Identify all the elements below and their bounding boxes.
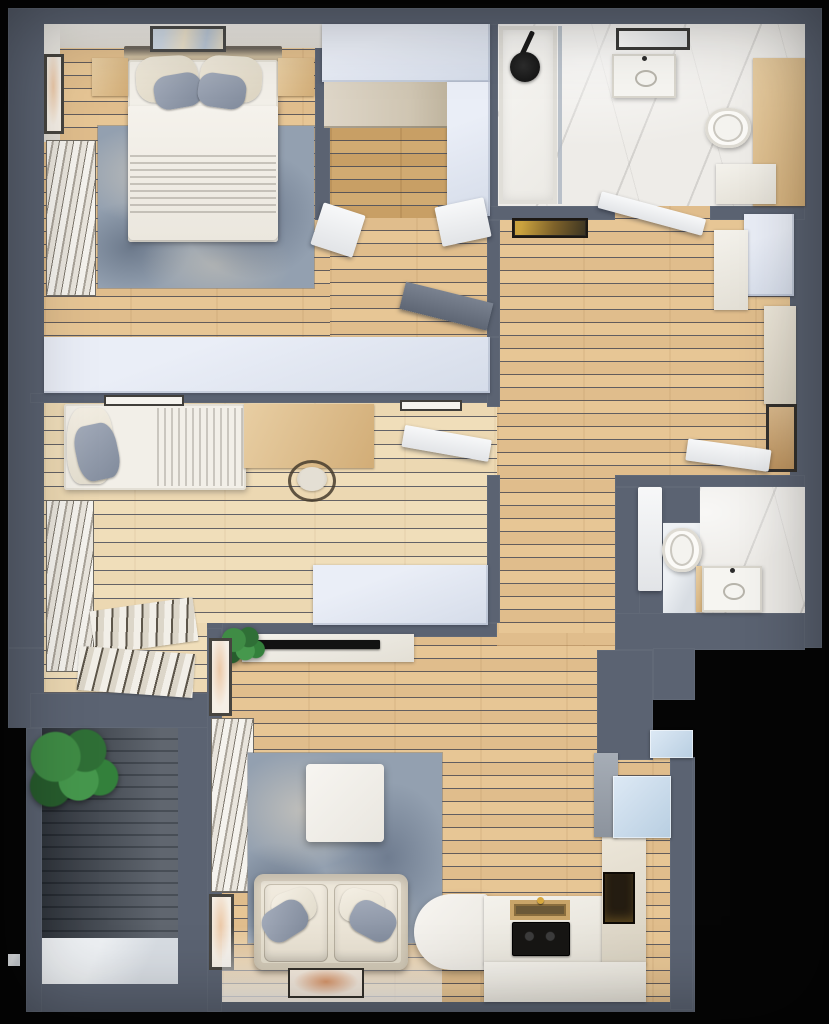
nightstand-right [278, 58, 314, 96]
wall-wc-notch [663, 487, 700, 523]
wall-wc-north [615, 475, 805, 487]
tv-screen [254, 640, 380, 649]
floor-artwork [288, 968, 364, 998]
bed2-duvet-folds [152, 408, 244, 486]
wall-closet-bathroom [490, 24, 498, 220]
frame-above-bed [150, 26, 226, 52]
kitchen-sink [510, 900, 570, 920]
desk-chair [288, 460, 336, 502]
hall-tall-cabinet [764, 306, 796, 404]
hall-cabinet-upper [744, 214, 794, 296]
wall-bedroom2-east-lower [487, 475, 500, 623]
frame-living-upper [209, 638, 232, 716]
wardrobe-band [44, 337, 490, 393]
balcony-corner-mark [8, 954, 20, 966]
kitchen-oven [603, 872, 635, 924]
bathroom-toilet [705, 108, 751, 148]
frame-living-lower [209, 894, 234, 970]
hall-mirror [766, 404, 797, 472]
window-blinds-bedroom1 [46, 140, 96, 296]
dining-counter-end [414, 894, 488, 970]
hall-cabinet-corner [714, 230, 748, 310]
bathroom-vanity-sink [612, 54, 676, 98]
plant-balcony [28, 726, 120, 814]
wc-door [638, 487, 662, 591]
wall-bedroom2-south [30, 693, 222, 728]
kitchen-cabinet-bottom [484, 962, 646, 1002]
wall-kitchen-block-east [653, 648, 695, 700]
shower-head [510, 52, 540, 82]
apartment-floor-plan-3d-render [0, 0, 829, 1024]
floor-hall-lower [497, 480, 630, 650]
shower-glass-panel [558, 26, 562, 204]
exterior-left-lower [0, 728, 26, 1024]
desk [244, 404, 374, 468]
bathroom-storage-box [716, 164, 776, 204]
bed1-duvet-folds [130, 150, 276, 214]
kitchen-cooktop [512, 922, 570, 956]
bed2-mat-lower [77, 646, 196, 698]
wall-kitchen-block-west [597, 650, 653, 760]
frame-bedroom1-wall [44, 54, 64, 134]
shelf-above-bed2 [104, 395, 184, 406]
nightstand-left [92, 58, 128, 96]
exterior-bottom-strip [0, 1012, 829, 1024]
notch-cabinet-blue [650, 730, 693, 758]
bed2-cabinet [313, 565, 488, 625]
wall-wc-south [615, 613, 805, 650]
wall-kitchen-east [670, 758, 693, 1010]
floor-balcony-white [40, 938, 178, 984]
bathroom-mirror [616, 28, 690, 50]
closet-open-shelf [324, 82, 447, 128]
wc-sink [702, 566, 762, 612]
coffee-table [306, 764, 384, 842]
closet-cabinet-right [447, 82, 490, 216]
closet-cabinet-top [322, 24, 490, 82]
fridge [613, 776, 671, 838]
shelf-above-desk [400, 400, 462, 411]
entry-doormat [512, 218, 588, 238]
